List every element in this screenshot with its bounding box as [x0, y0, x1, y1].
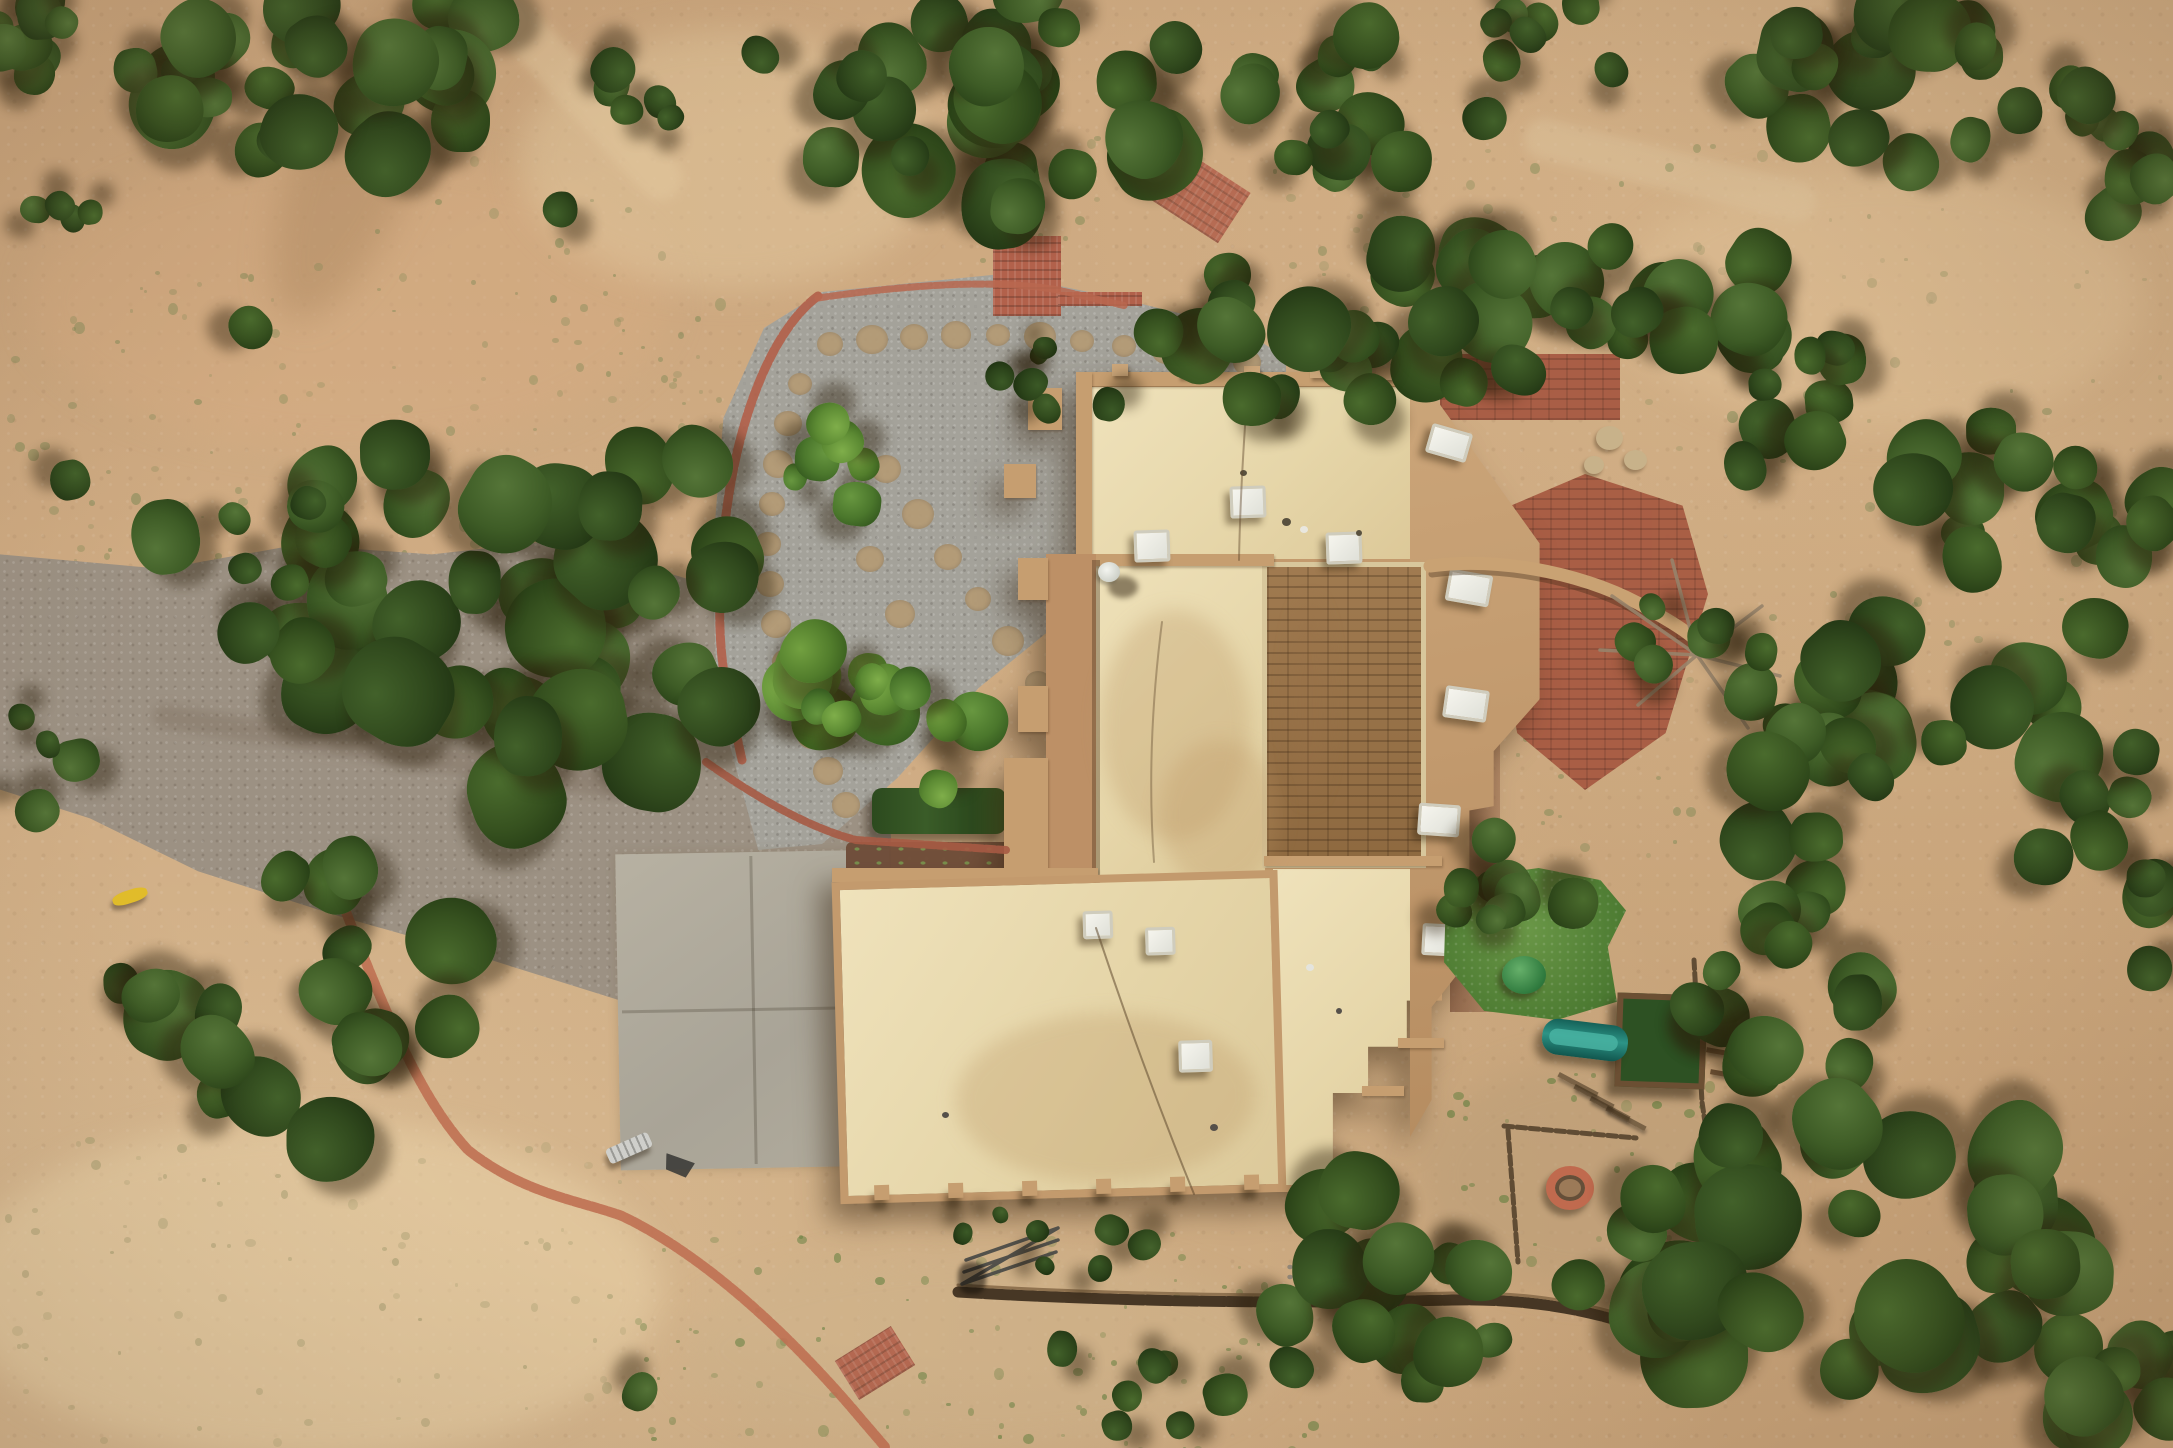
- photo-vignette: [0, 0, 2173, 1448]
- aerial-photo: [0, 0, 2173, 1448]
